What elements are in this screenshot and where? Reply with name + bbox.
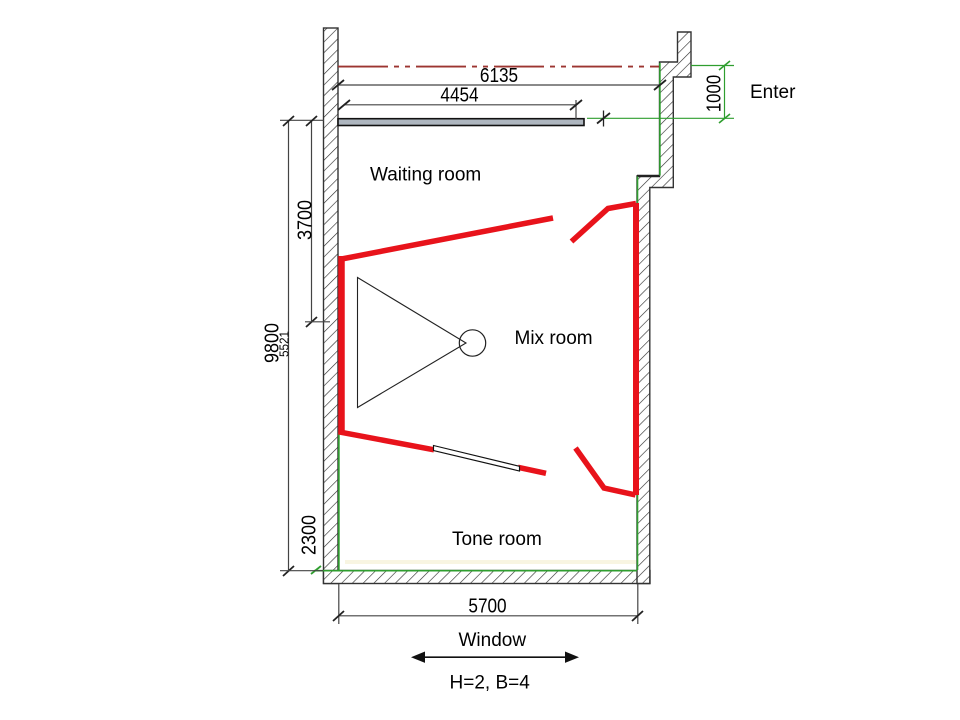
svg-text:Enter: Enter bbox=[750, 82, 796, 103]
svg-text:3700: 3700 bbox=[295, 200, 317, 240]
svg-text:H=2, B=4: H=2, B=4 bbox=[450, 673, 531, 694]
svg-text:5700: 5700 bbox=[468, 594, 506, 617]
svg-text:Tone room: Tone room bbox=[452, 529, 542, 550]
svg-text:1000: 1000 bbox=[702, 75, 725, 112]
svg-text:4454: 4454 bbox=[440, 83, 478, 106]
svg-text:Mix room: Mix room bbox=[515, 328, 593, 349]
svg-text:5521: 5521 bbox=[277, 331, 292, 357]
svg-text:2300: 2300 bbox=[299, 515, 321, 555]
svg-text:Waiting room: Waiting room bbox=[370, 165, 481, 186]
svg-text:Window: Window bbox=[459, 630, 527, 651]
svg-text:6135: 6135 bbox=[480, 64, 518, 87]
